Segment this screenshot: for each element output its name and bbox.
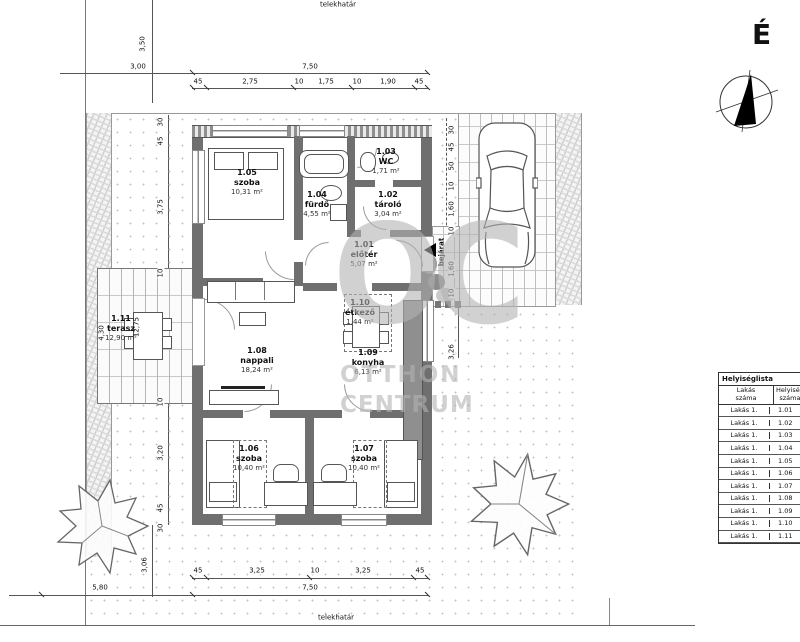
floor-plan-canvas: telekhatár telekhatár 3,50 3,00 7,50 45 … (0, 0, 800, 642)
wall (347, 136, 355, 237)
table-title: Helyiséglista (719, 373, 800, 386)
room-id: 1.02 (374, 190, 401, 200)
tree-icon (465, 450, 573, 558)
room-id: 1.03 (372, 147, 399, 157)
sofa-cushion-line (264, 282, 265, 300)
boundary-line-bottom (0, 625, 695, 626)
chair (343, 331, 353, 344)
room-id: 1.11 (105, 314, 137, 324)
dim-label: 45 (158, 503, 165, 514)
room-id: 1.05 (231, 168, 263, 178)
room-name: nappali (240, 356, 273, 366)
col-header-apartment: Lakásszáma (719, 386, 774, 404)
table-row: Lakás 1.1.09 (719, 505, 800, 518)
room-id: 1.10 (345, 298, 375, 308)
dim-label: 1,60 (449, 200, 456, 218)
bathtub-inner (304, 154, 344, 174)
table-row: Lakás 1.1.06 (719, 468, 800, 481)
dim-label: 3,50 (140, 35, 147, 53)
wall (203, 410, 243, 418)
tv-bench (209, 390, 279, 405)
room-area: 18,24 m² (240, 366, 273, 375)
wall (393, 180, 421, 187)
boundary-tick (609, 598, 610, 625)
wall (294, 262, 303, 286)
dim-label: 3,25 (248, 568, 266, 575)
kitchen-counter (403, 300, 423, 460)
room-area: 10,40 m² (233, 464, 265, 473)
col-header-room: Helyiségszáma (774, 386, 800, 404)
table-row: Lakás 1.1.04 (719, 442, 800, 455)
table-row: Lakás 1.1.07 (719, 480, 800, 493)
window (192, 150, 205, 224)
room-area: 1,44 m² (345, 318, 375, 327)
room-name: terasz (105, 324, 137, 334)
table-row: Lakás 1.1.02 (719, 417, 800, 430)
dim-label: 3,26 (449, 343, 456, 361)
dim-label: 1,90 (379, 79, 397, 86)
tv (221, 386, 265, 389)
room-area: 12,90 m² (105, 334, 137, 343)
room-label: 1.09 konyha 6,13 m² (352, 348, 385, 377)
room-id: 1.09 (352, 348, 385, 358)
room-area: 1,71 m² (372, 167, 399, 176)
vegetation-strip-right (554, 113, 582, 305)
dim-label: 45 (449, 142, 456, 153)
dim-label: 3,25 (354, 568, 372, 575)
wall (347, 230, 361, 237)
room-label: 1.07 szoba 10,40 m² (348, 444, 380, 473)
dim-label: 10 (449, 226, 456, 237)
room-id: 1.06 (233, 444, 265, 454)
dim-label: 10 (449, 181, 456, 192)
room-area: 5,07 m² (350, 260, 377, 269)
table-row: Lakás 1.1.08 (719, 493, 800, 506)
room-area: 10,40 m² (348, 464, 380, 473)
sofa (207, 281, 295, 303)
dim-label: 1,75 (317, 79, 335, 86)
dim-label: 10 (352, 79, 363, 86)
room-id: 1.07 (348, 444, 380, 454)
dim-label: 3,00 (129, 64, 147, 71)
room-name: WC (372, 157, 399, 167)
dim-label: 3,06 (142, 556, 149, 574)
dim-label: 10 (158, 268, 165, 279)
boundary-label-top: telekhatár (319, 2, 357, 9)
dim-line (192, 88, 428, 89)
room-name: konyha (352, 358, 385, 368)
chair (162, 336, 172, 349)
room-area: 10,31 m² (231, 188, 263, 197)
chair (162, 318, 172, 331)
pillow (387, 482, 415, 502)
room-name: előtér (350, 250, 377, 260)
dim-label: 30 (158, 117, 165, 128)
dim-label: 45 (158, 136, 165, 147)
post (455, 301, 461, 308)
dim-label: 10 (310, 568, 321, 575)
desk (313, 482, 357, 506)
wall (270, 410, 342, 418)
dim-line (60, 73, 428, 74)
room-label: 1.05 szoba 10,31 m² (231, 168, 263, 197)
table-row: Lakás 1.1.03 (719, 430, 800, 443)
room-label: 1.06 szoba 10,40 m² (233, 444, 265, 473)
room-label: 1.10 étkező 1,44 m² (345, 298, 375, 327)
window (222, 514, 276, 526)
compass-icon (714, 62, 780, 132)
chair (321, 464, 347, 482)
room-label: 1.03 WC 1,71 m² (372, 147, 399, 176)
dim-label: 30 (449, 125, 456, 136)
entrance-arrow-icon (424, 243, 436, 257)
table-row: Lakás 1.1.11 (719, 531, 800, 544)
dim-label: 3,20 (158, 444, 165, 462)
dim-label: 45 (414, 79, 425, 86)
post (445, 301, 451, 308)
chair (379, 331, 389, 344)
dim-label: 30 (158, 523, 165, 534)
room-name: szoba (348, 454, 380, 464)
window (299, 125, 345, 137)
room-area: 3,04 m² (374, 210, 401, 219)
dim-label: 10 (294, 79, 305, 86)
wall (372, 283, 421, 291)
room-name: szoba (233, 454, 265, 464)
window (212, 125, 288, 137)
dim-label: 2,75 (241, 79, 259, 86)
dim-label: 45 (415, 568, 426, 575)
desk (264, 482, 308, 506)
room-area: 6,13 m² (352, 368, 385, 377)
dim-label: 5,80 (91, 585, 109, 592)
dim-label: 45 (193, 568, 204, 575)
dim-label: 3,75 (158, 198, 165, 216)
room-area: 4,55 m² (303, 210, 330, 219)
dim-label: 10 (158, 397, 165, 408)
chair (273, 464, 299, 482)
room-label: 1.04 fürdő 4,55 m² (303, 190, 330, 219)
room-list-table: Helyiséglista Lakásszáma Helyiségszáma L… (718, 372, 800, 544)
boundary-label-bottom: telekhatár (317, 615, 355, 622)
room-name: fürdő (303, 200, 330, 210)
chair (379, 312, 389, 325)
room-id: 1.01 (350, 240, 377, 250)
room-id: 1.08 (240, 346, 273, 356)
dim-label: 7,50 (301, 64, 319, 71)
room-label: 1.01 előtér 5,07 m² (350, 240, 377, 269)
wall (390, 230, 421, 237)
room-name: tároló (374, 200, 401, 210)
room-label: 1.02 tároló 3,04 m² (374, 190, 401, 219)
north-label: É (752, 18, 771, 51)
table-row: Lakás 1.1.10 (719, 518, 800, 531)
coffee-table (239, 312, 266, 326)
room-name: étkező (345, 308, 375, 318)
dim-line (152, 0, 153, 103)
wall (303, 283, 337, 291)
table-subheader: Lakásszáma Helyiségszáma (719, 386, 800, 405)
dim-label: 7,50 (301, 585, 319, 592)
entrance-label: bejárat (439, 237, 446, 267)
table-row: Lakás 1.1.01 (719, 405, 800, 418)
dim-label: 10 (449, 288, 456, 299)
room-name: szoba (231, 178, 263, 188)
window (341, 514, 387, 526)
car-icon (476, 120, 538, 270)
dim-label: 1,60 (449, 260, 456, 278)
room-label: 1.08 nappali 18,24 m² (240, 346, 273, 375)
table-row: Lakás 1.1.05 (719, 455, 800, 468)
dim-label: 50 (449, 161, 456, 172)
post (435, 301, 441, 308)
room-id: 1.04 (303, 190, 330, 200)
tree-icon (52, 476, 152, 576)
room-label: 1.11 terasz 12,90 m² (105, 314, 137, 343)
sofa-cushion-line (235, 282, 236, 300)
dim-label: 45 (193, 79, 204, 86)
washing-machine (330, 204, 347, 221)
wall (355, 180, 375, 187)
